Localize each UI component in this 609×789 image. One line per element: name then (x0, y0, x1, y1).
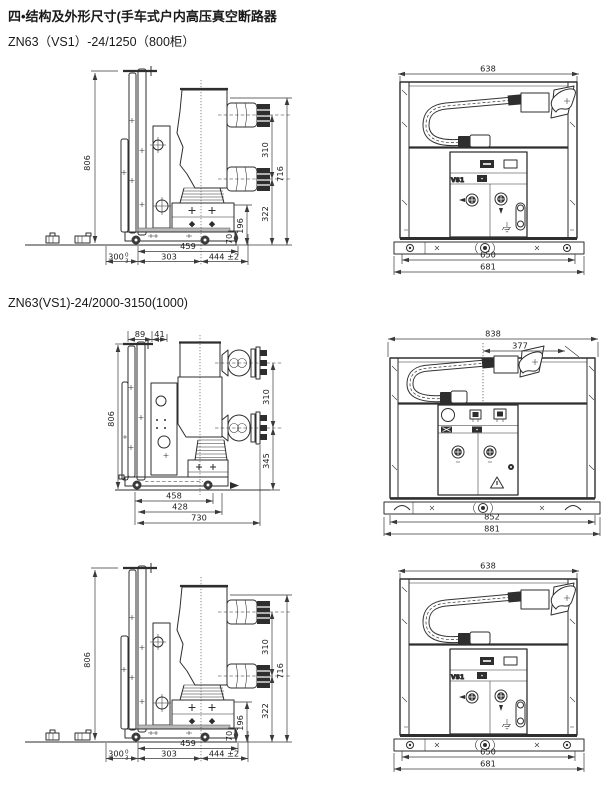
operating-box (172, 700, 234, 728)
drawing-side-view-800-repeat: 806 310 716 322 196 70 459 300 0 3 303 4… (20, 557, 320, 787)
dim-label-681: 681 (480, 759, 496, 769)
dim-label-881: 881 (484, 524, 500, 534)
ground-symbol (502, 222, 511, 232)
dim-label-650: 650 (480, 747, 496, 757)
handcart-frame (121, 66, 157, 235)
panel-model-label: VS1 (451, 177, 464, 184)
model-subtitle-1000: ZN63(VS1)-24/2000-3150(1000) (8, 296, 188, 310)
breaker-body (177, 586, 270, 700)
operating-box (188, 460, 228, 477)
secondary-cable (426, 583, 575, 644)
base-carriage (25, 725, 237, 742)
dim-label-716: 716 (275, 166, 285, 182)
drawing-side-view-1000: 89 41 806 310 345 458 428 730 (95, 325, 325, 543)
dim-label-458: 458 (166, 491, 182, 501)
dim-label-806: 806 (82, 652, 92, 668)
drawing-front-view-800-repeat: VS1 638 650 (380, 557, 605, 789)
panel-model-label: VS1 (451, 674, 464, 681)
drawing-front-view-800: VS1 638 650 (380, 60, 605, 292)
operating-box (172, 203, 234, 231)
dimensions: 89 41 806 310 345 458 428 730 (106, 329, 280, 526)
dim-label-428: 428 (172, 502, 188, 512)
dim-label-459: 459 (180, 738, 196, 748)
charging-handle (516, 700, 525, 727)
close-knob (484, 446, 496, 462)
secondary-cable (426, 86, 575, 147)
dim-label-345: 345 (261, 453, 271, 469)
dim-label-70: 70 (224, 234, 234, 244)
base-carriage (25, 228, 237, 245)
dim-label-681: 681 (480, 262, 496, 272)
dim-label-377: 377 (512, 341, 528, 351)
dim-label-303: 303 (161, 749, 177, 759)
catalog-page: { "page": { "title": "四•结构及外形尺寸(手车式户内高压真… (0, 0, 609, 783)
close-knob (495, 193, 507, 214)
dim-label-300: 300 (108, 749, 124, 759)
support-bracket (150, 126, 171, 228)
breaker-front-panel: VS1 (450, 152, 527, 237)
dim-label-70: 70 (224, 731, 234, 741)
dim-label-322: 322 (260, 206, 270, 222)
bellows (180, 188, 224, 203)
breaker-front-panel (438, 405, 518, 495)
dim-label-730: 730 (191, 513, 207, 523)
handcart-frame (121, 563, 157, 732)
dim-label-300: 300 (108, 252, 124, 262)
plug-handle (551, 583, 575, 615)
bellows (180, 685, 224, 700)
drawing-side-view-800: 806 310 716 322 196 70 459 300 0 3 303 4… (20, 60, 320, 290)
plug-handle (551, 86, 575, 118)
page-title: 四•结构及外形尺寸(手车式户内高压真空断路器 (8, 6, 277, 25)
dim-label-196: 196 (235, 715, 245, 731)
dim-label-89: 89 (135, 329, 145, 339)
dim-label-310: 310 (261, 389, 271, 405)
dim-label-196: 196 (235, 218, 245, 234)
charging-handle (516, 203, 525, 230)
dim-label-310: 310 (260, 142, 270, 158)
secondary-cable (410, 346, 544, 403)
dim-label-638: 638 (480, 64, 496, 74)
breaker-body (177, 89, 270, 203)
dim-label-303: 303 (161, 252, 177, 262)
dim-label-650: 650 (480, 250, 496, 260)
dim-label-459: 459 (180, 241, 196, 251)
ground-symbol (502, 719, 511, 729)
dim-label-806: 806 (82, 155, 92, 171)
dim-tol-lower: 3 (125, 756, 129, 762)
support-bracket (150, 623, 171, 725)
dim-label-638: 638 (480, 561, 496, 571)
model-subtitle-800: ZN63（VS1）-24/1250（800柜） (8, 31, 195, 50)
dim-label-41: 41 (154, 329, 164, 339)
base-carriage (115, 475, 270, 490)
drawing-front-view-1000: 838 377 852 881 (370, 325, 608, 543)
open-knob (452, 446, 464, 462)
plug-handle (519, 346, 544, 377)
support-bracket (151, 383, 177, 475)
handcart-frame (122, 339, 153, 480)
dim-label-310: 310 (260, 639, 270, 655)
dim-label-806: 806 (106, 411, 116, 427)
dim-label-444: 444 ±2 (209, 749, 239, 759)
breaker-front-panel: VS1 (450, 649, 527, 734)
open-knob (459, 691, 478, 703)
dim-label-444: 444 ±2 (209, 252, 239, 262)
dim-label-716: 716 (275, 663, 285, 679)
dim-tol-lower: 3 (125, 259, 129, 265)
breaker-body (178, 343, 267, 461)
warning-triangle (491, 477, 504, 488)
dim-label-852: 852 (484, 512, 500, 522)
open-knob (459, 194, 478, 206)
dim-label-322: 322 (260, 703, 270, 719)
dim-label-838: 838 (485, 329, 501, 339)
cabinet-frame (390, 358, 595, 498)
close-knob (495, 690, 507, 711)
